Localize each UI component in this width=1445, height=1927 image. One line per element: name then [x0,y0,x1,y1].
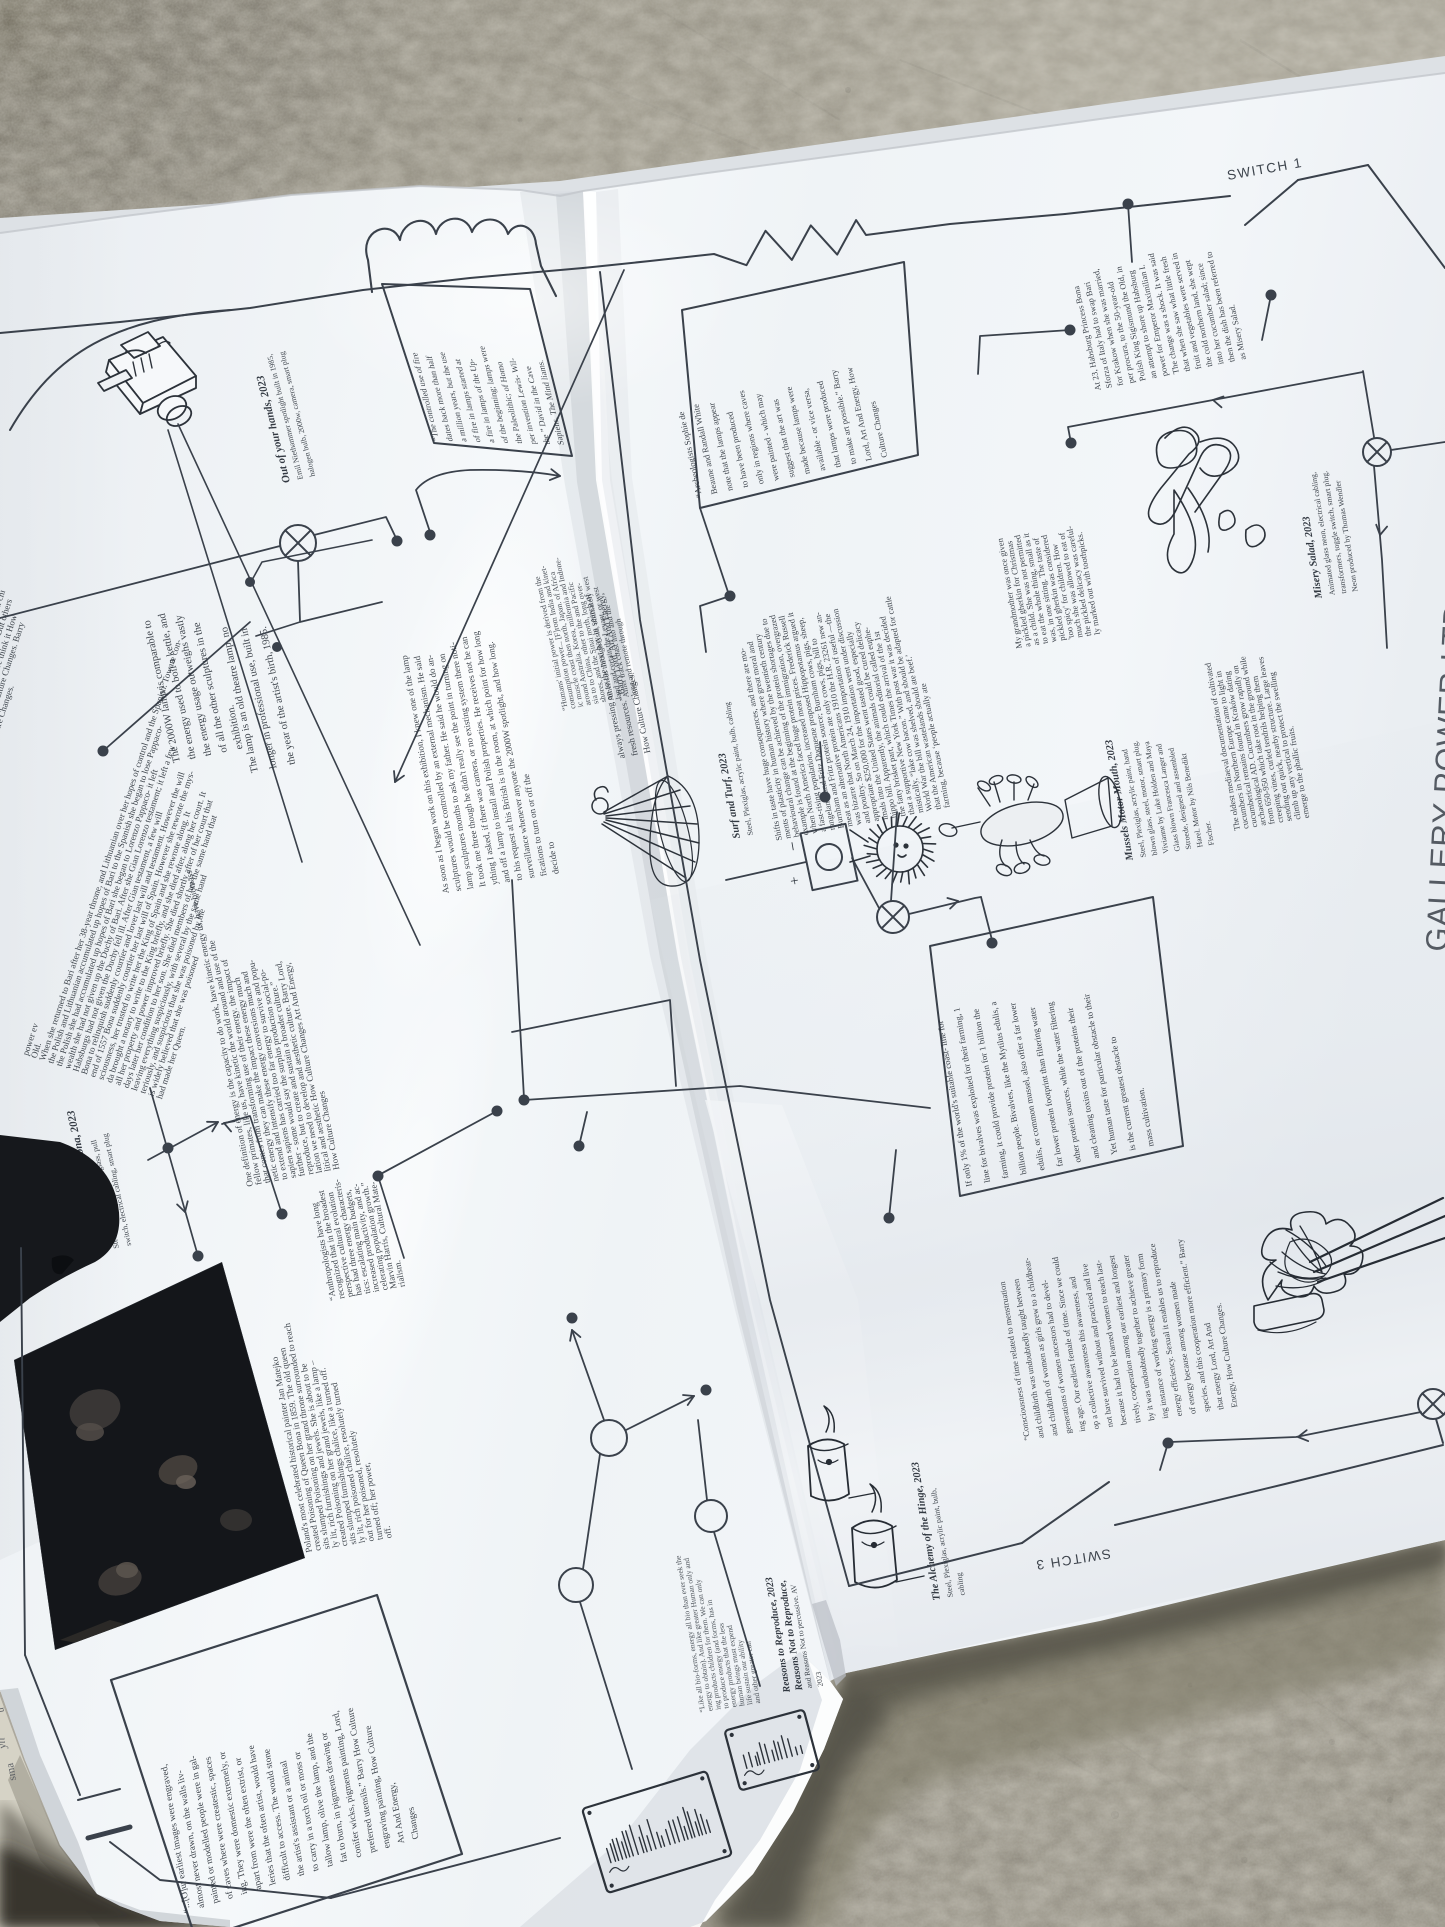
svg-text:u: u [0,1707,7,1714]
